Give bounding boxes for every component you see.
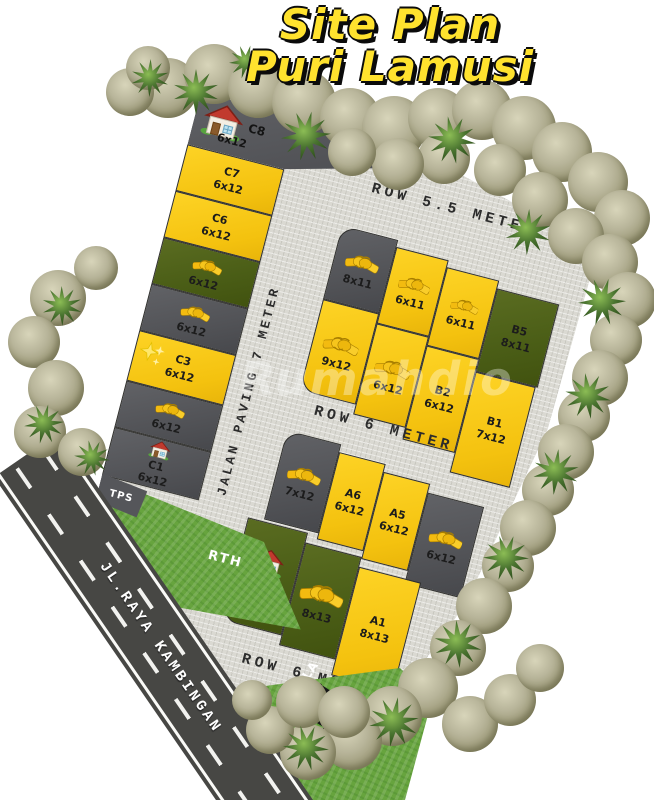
site-plan-canvas: ROW 5.5 METER ROW 6 METER ROW 6 METER JA… [0, 0, 654, 800]
page-title-line2: Puri Lamusi [150, 42, 630, 91]
tree-puff [28, 360, 84, 416]
plot-size: 8x13 [358, 626, 391, 647]
plot-size: 6x12 [378, 518, 411, 539]
plot-size: 6x12 [333, 498, 366, 519]
rth-label: RTH [206, 548, 244, 571]
plot-size: 6x12 [163, 365, 196, 386]
tree-puff [408, 88, 468, 148]
tree-puff [600, 272, 654, 328]
tree-puff [590, 314, 642, 366]
tree-puff [8, 316, 60, 368]
plot-size: 6x12 [212, 177, 245, 198]
watermark: Rumahdio [240, 352, 514, 406]
plot-size: 6x12 [200, 223, 233, 244]
sparkles-icon [136, 338, 168, 370]
tree-puff [30, 270, 86, 326]
tree-puff [572, 350, 628, 406]
tree-puff [516, 644, 564, 692]
plot-size: 6x12 [216, 131, 248, 151]
tree-puff [74, 246, 118, 290]
tree-puff [532, 122, 592, 182]
tree-puff [492, 96, 556, 160]
tree-puff [106, 68, 154, 116]
palm-tree [42, 286, 82, 326]
plot-name: C8 [247, 121, 267, 139]
